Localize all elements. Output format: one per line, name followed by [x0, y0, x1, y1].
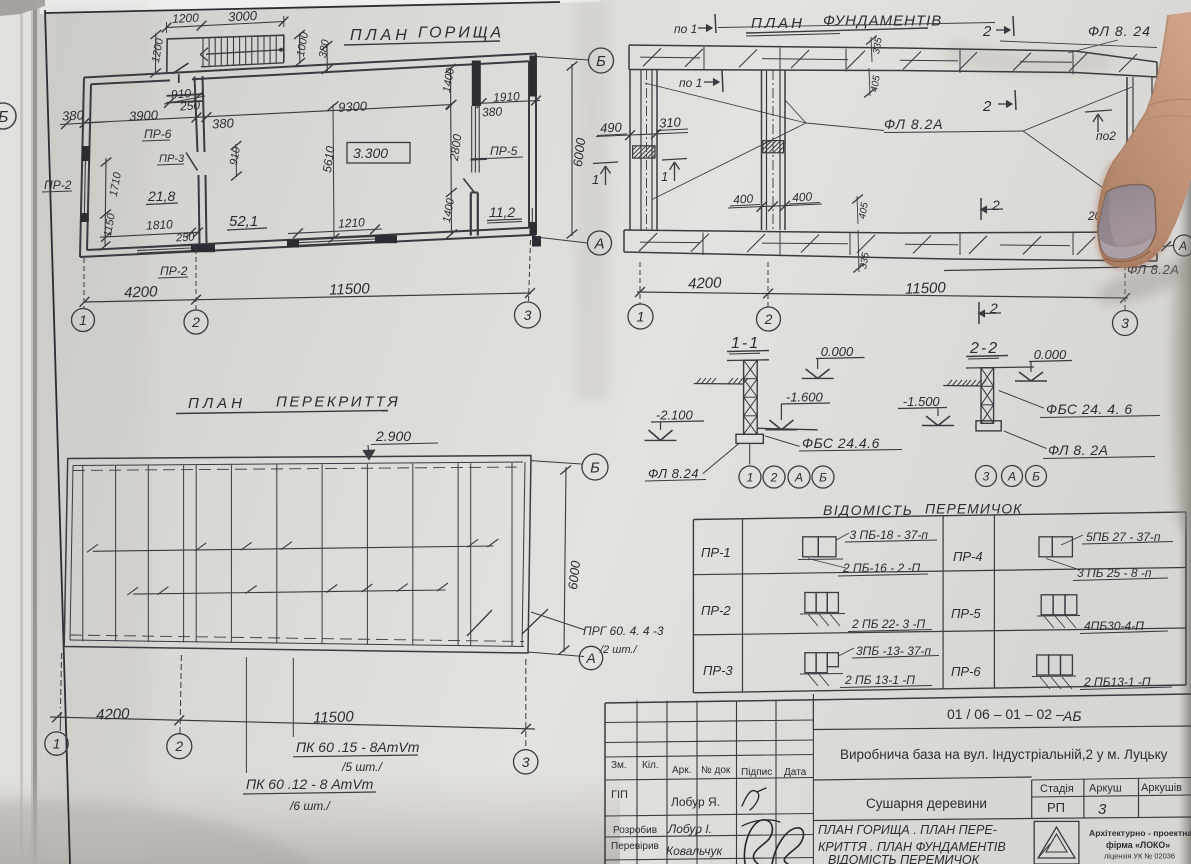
svg-text:ГОРИЩА: ГОРИЩА: [418, 25, 504, 42]
svg-text:1: 1: [637, 309, 645, 325]
svg-text:ПК 60 .15 - 8АтVт: ПК 60 .15 - 8АтVт: [296, 739, 420, 755]
svg-text:2 ПБ 22- 3 -П: 2 ПБ 22- 3 -П: [851, 617, 926, 631]
svg-text:6000: 6000: [565, 559, 583, 590]
svg-text:3900: 3900: [129, 107, 159, 124]
svg-text:-1.600: -1.600: [786, 390, 824, 405]
svg-text:11500: 11500: [313, 708, 355, 726]
svg-text:ВІДОМІСТЬ ПЕРЕМИЧОК: ВІДОМІСТЬ ПЕРЕМИЧОК: [828, 853, 980, 864]
svg-text:А: А: [1007, 469, 1016, 483]
svg-text:ФЛ 8.24: ФЛ 8.24: [648, 466, 699, 481]
svg-text:А: А: [585, 650, 595, 666]
svg-text:3: 3: [524, 307, 532, 323]
svg-text:ПЛАН: ПЛАН: [188, 395, 246, 412]
svg-text:Дата: Дата: [784, 767, 807, 778]
svg-text:9300: 9300: [338, 98, 368, 115]
svg-text:ВІДОМІСТЬ: ВІДОМІСТЬ: [823, 502, 913, 518]
svg-text:ПЛАН ГОРИЩА . ПЛАН ПЕРЕ-: ПЛАН ГОРИЩА . ПЛАН ПЕРЕ-: [818, 823, 997, 837]
svg-text:Сушарня деревини: Сушарня деревини: [866, 796, 987, 811]
svg-text:2 ПБ13-1 -П: 2 ПБ13-1 -П: [1083, 675, 1151, 689]
svg-text:Кіл.: Кіл.: [642, 760, 659, 771]
svg-text:Аркушів: Аркушів: [1141, 782, 1182, 794]
svg-text:310: 310: [659, 114, 682, 130]
svg-text:Лобур І.: Лобур І.: [667, 822, 712, 836]
svg-text:Б: Б: [596, 53, 606, 70]
svg-text:Виробнича база на вул. Індуст: Виробнича база на вул. Індустріальній,2 …: [840, 747, 1168, 762]
svg-text:1810: 1810: [146, 217, 174, 232]
svg-text:3: 3: [522, 754, 530, 770]
svg-text:11500: 11500: [905, 279, 947, 297]
svg-text:ПЕРЕКРИТТЯ: ПЕРЕКРИТТЯ: [276, 394, 400, 411]
svg-text:1: 1: [592, 172, 599, 187]
svg-text:1910: 1910: [493, 89, 521, 104]
svg-text:2 ПБ 13-1 -П: 2 ПБ 13-1 -П: [844, 673, 915, 687]
svg-text:ПР-3: ПР-3: [703, 663, 733, 678]
svg-text:ПРГ 60. 4. 4 -3: ПРГ 60. 4. 4 -3: [583, 624, 664, 638]
svg-text:ПР-1: ПР-1: [701, 545, 731, 560]
svg-text:/5 шт./: /5 шт./: [341, 760, 383, 774]
svg-text:ПР-3: ПР-3: [159, 153, 185, 165]
svg-text:ПР-5: ПР-5: [951, 606, 981, 621]
svg-text:2 ПБ-16 - 2 -П: 2 ПБ-16 - 2 -П: [842, 561, 921, 575]
svg-text:11500: 11500: [329, 280, 371, 298]
svg-text:2: 2: [991, 197, 1000, 213]
svg-text:по 1: по 1: [674, 22, 697, 36]
svg-text:ФЛ 8. 2А: ФЛ 8. 2А: [1048, 442, 1109, 458]
svg-text:2: 2: [770, 470, 778, 484]
svg-text:1210: 1210: [338, 215, 366, 230]
svg-text:380: 380: [212, 115, 235, 131]
svg-text:А: А: [593, 235, 604, 252]
svg-text:2: 2: [982, 23, 992, 40]
svg-text:2: 2: [989, 300, 998, 316]
svg-text:Б: Б: [0, 109, 8, 126]
svg-text:Розробив: Розробив: [613, 824, 657, 836]
svg-text:ФУНДАМЕНТІВ: ФУНДАМЕНТІВ: [823, 13, 942, 30]
svg-text:ПЛАН: ПЛАН: [751, 15, 805, 32]
svg-text:Підпис: Підпис: [741, 767, 772, 778]
svg-text:Б: Б: [819, 470, 827, 484]
svg-text:1: 1: [79, 312, 87, 328]
svg-text:4200: 4200: [96, 705, 131, 723]
svg-text:1200: 1200: [172, 11, 200, 26]
svg-text:Лобур Я.: Лобур Я.: [671, 795, 720, 809]
svg-text:ПР-2: ПР-2: [44, 178, 72, 192]
svg-text:1-1: 1-1: [731, 335, 760, 352]
svg-text:ФБС 24.4.6: ФБС 24.4.6: [802, 435, 880, 451]
svg-text:4200: 4200: [688, 274, 723, 292]
svg-text:ПЛАН: ПЛАН: [350, 27, 411, 44]
svg-text:А: А: [794, 470, 803, 484]
svg-text:КРИТТЯ . ПЛАН ФУНДАМЕНТІВ: КРИТТЯ . ПЛАН ФУНДАМЕНТІВ: [818, 840, 1006, 854]
svg-text:/6 шт./: /6 шт./: [289, 799, 331, 813]
svg-text:ліцензія УК № 02036: ліцензія УК № 02036: [1104, 852, 1175, 861]
svg-text:3: 3: [1121, 315, 1129, 331]
svg-text:380: 380: [482, 104, 503, 119]
svg-text:№ док: № док: [701, 765, 731, 776]
svg-text:2.900: 2.900: [375, 428, 411, 444]
svg-text:3000: 3000: [228, 8, 258, 25]
svg-text:Б: Б: [1032, 469, 1040, 483]
svg-text:2: 2: [764, 311, 773, 327]
svg-text:ПР-6: ПР-6: [951, 664, 981, 679]
svg-text:1: 1: [747, 470, 754, 484]
svg-text:2-2: 2-2: [969, 340, 999, 357]
svg-text:ПК 60 .12 - 8 АтVт: ПК 60 .12 - 8 АтVт: [246, 776, 374, 792]
svg-text:3 ПБ 25 - 8 -п: 3 ПБ 25 - 8 -п: [1077, 566, 1152, 580]
svg-text:ПР-5: ПР-5: [490, 144, 518, 158]
svg-text:по2: по2: [1096, 129, 1116, 143]
svg-text:250: 250: [175, 231, 196, 244]
svg-text:Перевірив: Перевірив: [611, 841, 659, 852]
svg-text:Стадія: Стадія: [1040, 783, 1074, 795]
svg-text:ПР-4: ПР-4: [953, 549, 983, 564]
svg-text:АБ: АБ: [1062, 708, 1081, 724]
svg-text:ФБС 24. 4. 6: ФБС 24. 4. 6: [1046, 401, 1133, 417]
svg-text:52,1: 52,1: [229, 213, 258, 230]
svg-text:11,2: 11,2: [489, 204, 515, 220]
svg-text:0.000: 0.000: [821, 344, 854, 359]
svg-text:380: 380: [62, 107, 85, 123]
svg-text:фірма «ЛОКО»: фірма «ЛОКО»: [1106, 840, 1170, 850]
svg-text:01 / 06 – 01 – 02 –: 01 / 06 – 01 – 02 –: [947, 706, 1064, 722]
svg-text:по 1: по 1: [679, 76, 702, 90]
svg-text:Зм.: Зм.: [611, 760, 627, 771]
svg-text:ГІП: ГІП: [611, 789, 628, 801]
svg-text:4200: 4200: [124, 283, 159, 301]
svg-text:2: 2: [982, 98, 992, 115]
svg-text:3.300: 3.300: [353, 145, 388, 161]
svg-text:3: 3: [1098, 801, 1107, 818]
svg-text:1: 1: [661, 169, 668, 184]
svg-text:1: 1: [53, 736, 61, 752]
svg-text:Арк.: Арк.: [672, 765, 691, 776]
svg-text:ФЛ 8.2А: ФЛ 8.2А: [884, 116, 944, 132]
svg-text:2: 2: [191, 314, 200, 330]
svg-text:Аркуш: Аркуш: [1089, 783, 1122, 795]
svg-text:2: 2: [174, 738, 183, 754]
svg-text:250: 250: [179, 98, 201, 113]
svg-text:490: 490: [600, 119, 623, 135]
svg-text:ПР-2: ПР-2: [160, 264, 188, 278]
svg-text:-1.500: -1.500: [903, 394, 941, 409]
svg-text:РП: РП: [1047, 800, 1065, 815]
svg-text:ФЛ 8. 24: ФЛ 8. 24: [1088, 23, 1151, 39]
svg-text:3: 3: [983, 469, 990, 483]
svg-text:21,8: 21,8: [147, 188, 175, 204]
svg-text:Б: Б: [590, 459, 600, 476]
svg-text:ПР-2: ПР-2: [701, 603, 731, 618]
svg-text:Ковальчук: Ковальчук: [666, 844, 724, 858]
svg-text:/2 шт./: /2 шт./: [599, 644, 637, 656]
svg-text:Архітектурно - проектна: Архітектурно - проектна: [1089, 828, 1191, 838]
svg-text:ПР-6: ПР-6: [144, 127, 172, 141]
svg-text:4ПБ30-4-П: 4ПБ30-4-П: [1084, 619, 1144, 633]
svg-text:-2.100: -2.100: [656, 408, 694, 423]
svg-text:0.000: 0.000: [1034, 347, 1067, 362]
